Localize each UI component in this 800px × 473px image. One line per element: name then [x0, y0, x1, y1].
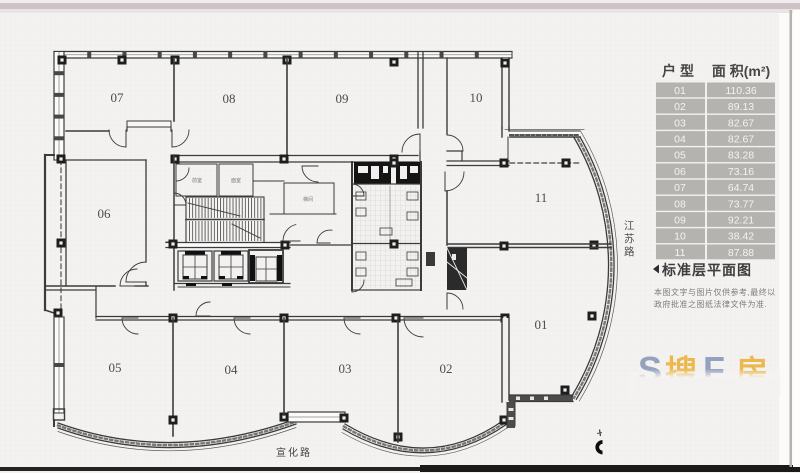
svg-text:82.67: 82.67: [728, 134, 754, 146]
svg-text:92.21: 92.21: [728, 215, 754, 227]
svg-text:户型: 户型: [662, 63, 698, 79]
svg-text:面室: 面室: [231, 177, 241, 184]
svg-text:江: 江: [624, 220, 635, 232]
svg-text:梯间: 梯间: [303, 196, 313, 203]
svg-text:06: 06: [98, 206, 112, 221]
svg-text:05: 05: [674, 150, 686, 162]
svg-text:11: 11: [535, 190, 548, 205]
svg-text:89.13: 89.13: [728, 101, 754, 113]
svg-text:10: 10: [470, 90, 483, 105]
svg-text:01: 01: [535, 317, 548, 332]
svg-text:宣化路: 宣化路: [276, 446, 312, 459]
svg-text:10: 10: [674, 231, 686, 243]
svg-text:苏: 苏: [624, 232, 635, 245]
svg-text:09: 09: [336, 91, 349, 106]
svg-text:82.67: 82.67: [728, 117, 754, 129]
svg-text:02: 02: [674, 101, 686, 113]
svg-text:02: 02: [440, 361, 453, 376]
svg-text:标准层平面图: 标准层平面图: [661, 262, 752, 278]
svg-text:本图文字与图片仅供参考,最终以: 本图文字与图片仅供参考,最终以: [654, 287, 776, 297]
svg-text:07: 07: [111, 90, 125, 105]
svg-text:110.36: 110.36: [725, 85, 756, 97]
svg-text:01: 01: [674, 85, 686, 97]
svg-text:08: 08: [223, 91, 236, 106]
svg-text:政府批准之图纸法律文件为准.: 政府批准之图纸法律文件为准.: [654, 299, 767, 309]
svg-text:06: 06: [674, 166, 686, 178]
svg-text:07: 07: [674, 182, 686, 194]
svg-text:83.28: 83.28: [728, 150, 754, 162]
svg-text:04: 04: [674, 134, 686, 146]
svg-text:11: 11: [675, 247, 686, 259]
svg-text:09: 09: [674, 215, 686, 227]
svg-text:08: 08: [674, 198, 686, 210]
svg-text:前室: 前室: [192, 177, 202, 184]
svg-text:03: 03: [339, 361, 352, 376]
svg-text:05: 05: [109, 360, 122, 375]
svg-text:04: 04: [225, 362, 239, 377]
svg-text:路: 路: [624, 245, 635, 258]
svg-text:64.74: 64.74: [728, 182, 754, 194]
svg-text:73.16: 73.16: [728, 166, 754, 178]
svg-text:87.88: 87.88: [728, 247, 754, 259]
svg-text:面 积(m²): 面 积(m²): [712, 63, 770, 79]
svg-text:38.42: 38.42: [728, 231, 754, 243]
svg-text:73.77: 73.77: [728, 198, 754, 210]
svg-text:03: 03: [674, 117, 686, 129]
